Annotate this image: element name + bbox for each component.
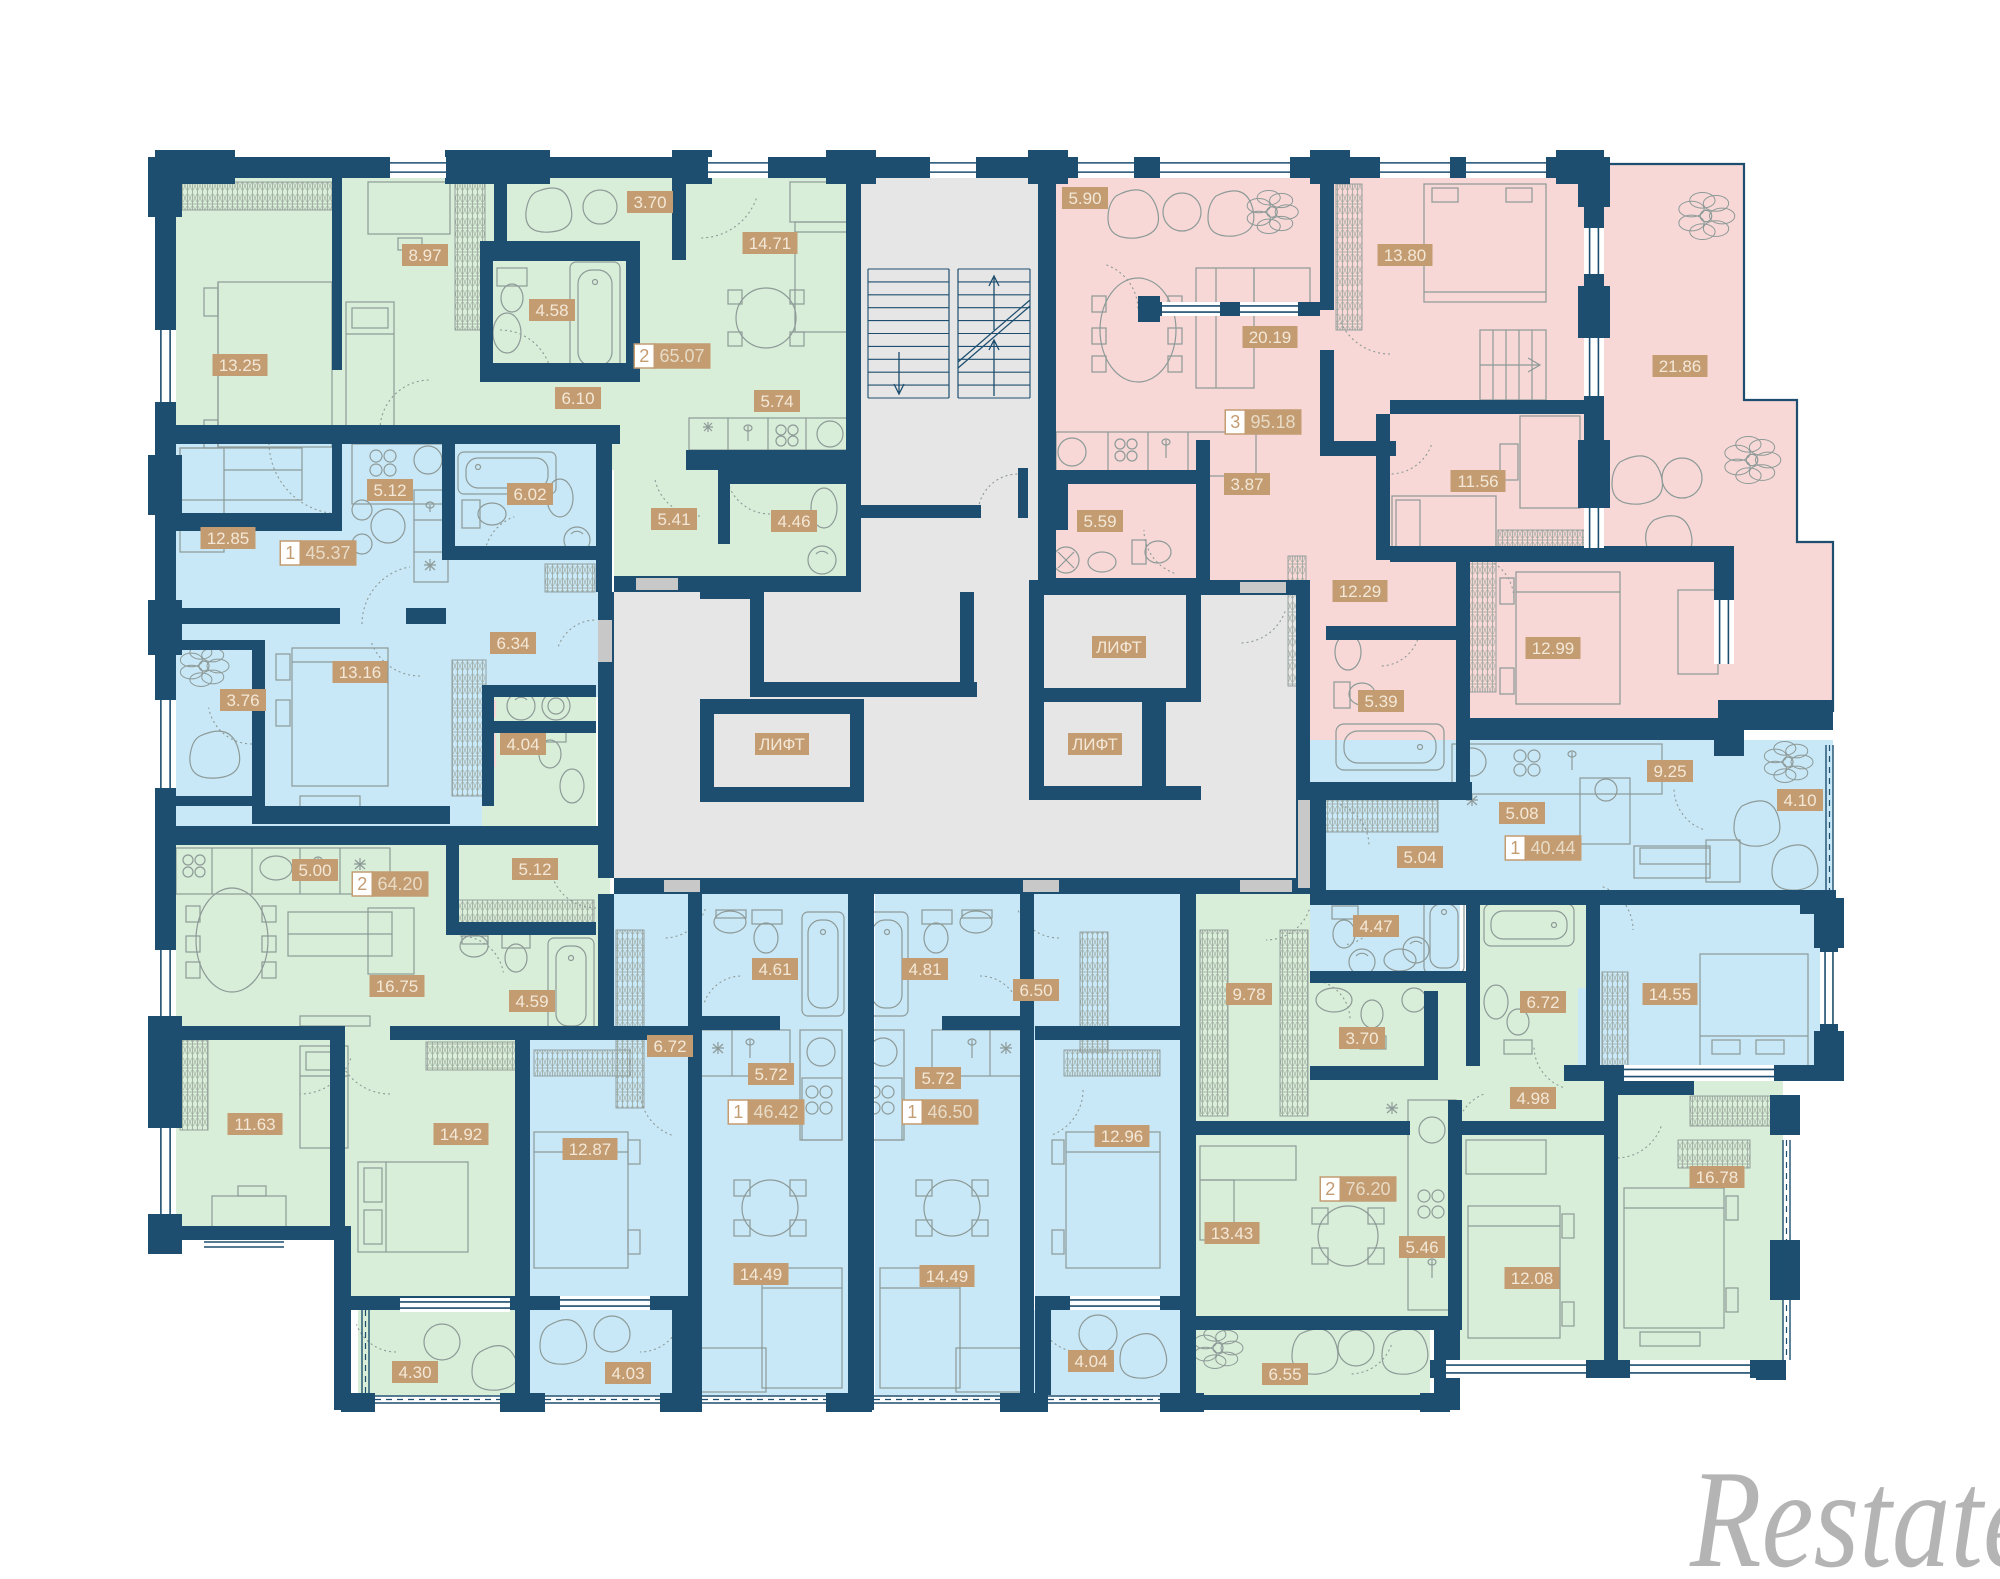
svg-text:6.34: 6.34	[496, 634, 529, 653]
svg-text:Restate: Restate	[1689, 1442, 2000, 1574]
svg-text:4.47: 4.47	[1359, 917, 1392, 936]
svg-text:95.18: 95.18	[1250, 412, 1295, 432]
svg-text:21.86: 21.86	[1659, 357, 1702, 376]
svg-text:14.49: 14.49	[740, 1265, 783, 1284]
svg-text:12.96: 12.96	[1101, 1127, 1144, 1146]
svg-text:40.44: 40.44	[1530, 838, 1575, 858]
svg-text:20.19: 20.19	[1249, 328, 1292, 347]
svg-text:5.72: 5.72	[921, 1069, 954, 1088]
svg-text:5.90: 5.90	[1068, 189, 1101, 208]
svg-text:5.74: 5.74	[760, 392, 793, 411]
svg-text:ЛИФТ: ЛИФТ	[759, 735, 805, 754]
svg-text:46.42: 46.42	[753, 1102, 798, 1122]
svg-text:14.92: 14.92	[440, 1125, 483, 1144]
svg-text:3.76: 3.76	[226, 691, 259, 710]
svg-text:6.72: 6.72	[1526, 993, 1559, 1012]
svg-text:11.56: 11.56	[1457, 472, 1498, 491]
svg-text:4.04: 4.04	[1074, 1352, 1107, 1371]
svg-text:12.85: 12.85	[207, 529, 250, 548]
svg-text:2: 2	[639, 346, 649, 366]
svg-text:16.75: 16.75	[376, 977, 419, 996]
svg-text:6.02: 6.02	[513, 485, 546, 504]
svg-text:46.50: 46.50	[927, 1102, 972, 1122]
svg-text:65.07: 65.07	[659, 346, 704, 366]
svg-text:12.99: 12.99	[1532, 639, 1575, 658]
svg-text:4.04: 4.04	[506, 735, 539, 754]
svg-text:16.78: 16.78	[1696, 1168, 1739, 1187]
svg-text:4.03: 4.03	[611, 1364, 644, 1383]
svg-text:5.59: 5.59	[1083, 512, 1116, 531]
svg-text:6.72: 6.72	[653, 1037, 686, 1056]
svg-text:6.55: 6.55	[1268, 1365, 1301, 1384]
svg-text:4.46: 4.46	[777, 512, 810, 531]
svg-text:5.41: 5.41	[657, 510, 690, 529]
svg-text:5.39: 5.39	[1364, 692, 1397, 711]
svg-text:13.16: 13.16	[339, 663, 382, 682]
svg-text:6.50: 6.50	[1019, 981, 1052, 1000]
svg-text:1: 1	[733, 1102, 743, 1122]
svg-text:12.87: 12.87	[569, 1140, 612, 1159]
svg-text:11.63: 11.63	[234, 1115, 275, 1134]
svg-text:3.70: 3.70	[633, 193, 666, 212]
svg-text:3.87: 3.87	[1230, 475, 1263, 494]
svg-text:5.04: 5.04	[1403, 848, 1436, 867]
svg-text:9.25: 9.25	[1653, 762, 1686, 781]
svg-text:9.78: 9.78	[1232, 985, 1265, 1004]
svg-text:64.20: 64.20	[377, 874, 422, 894]
svg-text:6.10: 6.10	[561, 389, 594, 408]
svg-text:13.25: 13.25	[219, 356, 262, 375]
svg-text:5.00: 5.00	[298, 861, 331, 880]
svg-text:13.43: 13.43	[1211, 1224, 1254, 1243]
svg-text:14.55: 14.55	[1649, 985, 1692, 1004]
svg-text:ЛИФТ: ЛИФТ	[1096, 638, 1142, 657]
svg-text:2: 2	[1325, 1179, 1335, 1199]
svg-text:4.58: 4.58	[535, 301, 568, 320]
svg-text:5.08: 5.08	[1505, 804, 1538, 823]
svg-text:4.10: 4.10	[1783, 791, 1816, 810]
svg-text:8.97: 8.97	[408, 246, 441, 265]
svg-text:5.12: 5.12	[518, 860, 551, 879]
svg-text:4.81: 4.81	[908, 960, 941, 979]
svg-text:14.71: 14.71	[749, 234, 792, 253]
svg-text:4.98: 4.98	[1516, 1089, 1549, 1108]
svg-text:13.80: 13.80	[1384, 246, 1427, 265]
svg-text:3.70: 3.70	[1345, 1029, 1378, 1048]
svg-text:5.46: 5.46	[1405, 1238, 1438, 1257]
svg-text:12.29: 12.29	[1339, 582, 1382, 601]
svg-text:2: 2	[357, 874, 367, 894]
svg-text:4.30: 4.30	[398, 1363, 431, 1382]
svg-text:ЛИФТ: ЛИФТ	[1072, 735, 1118, 754]
svg-text:12.08: 12.08	[1511, 1269, 1554, 1288]
svg-text:14.49: 14.49	[926, 1267, 969, 1286]
svg-text:76.20: 76.20	[1345, 1179, 1390, 1199]
svg-text:5.12: 5.12	[373, 481, 406, 500]
svg-text:4.61: 4.61	[758, 960, 791, 979]
svg-text:1: 1	[907, 1102, 917, 1122]
svg-text:1: 1	[285, 543, 295, 563]
svg-text:5.72: 5.72	[754, 1065, 787, 1084]
svg-text:4.59: 4.59	[515, 992, 548, 1011]
svg-text:3: 3	[1230, 412, 1240, 432]
svg-text:45.37: 45.37	[305, 543, 350, 563]
svg-text:1: 1	[1510, 838, 1520, 858]
